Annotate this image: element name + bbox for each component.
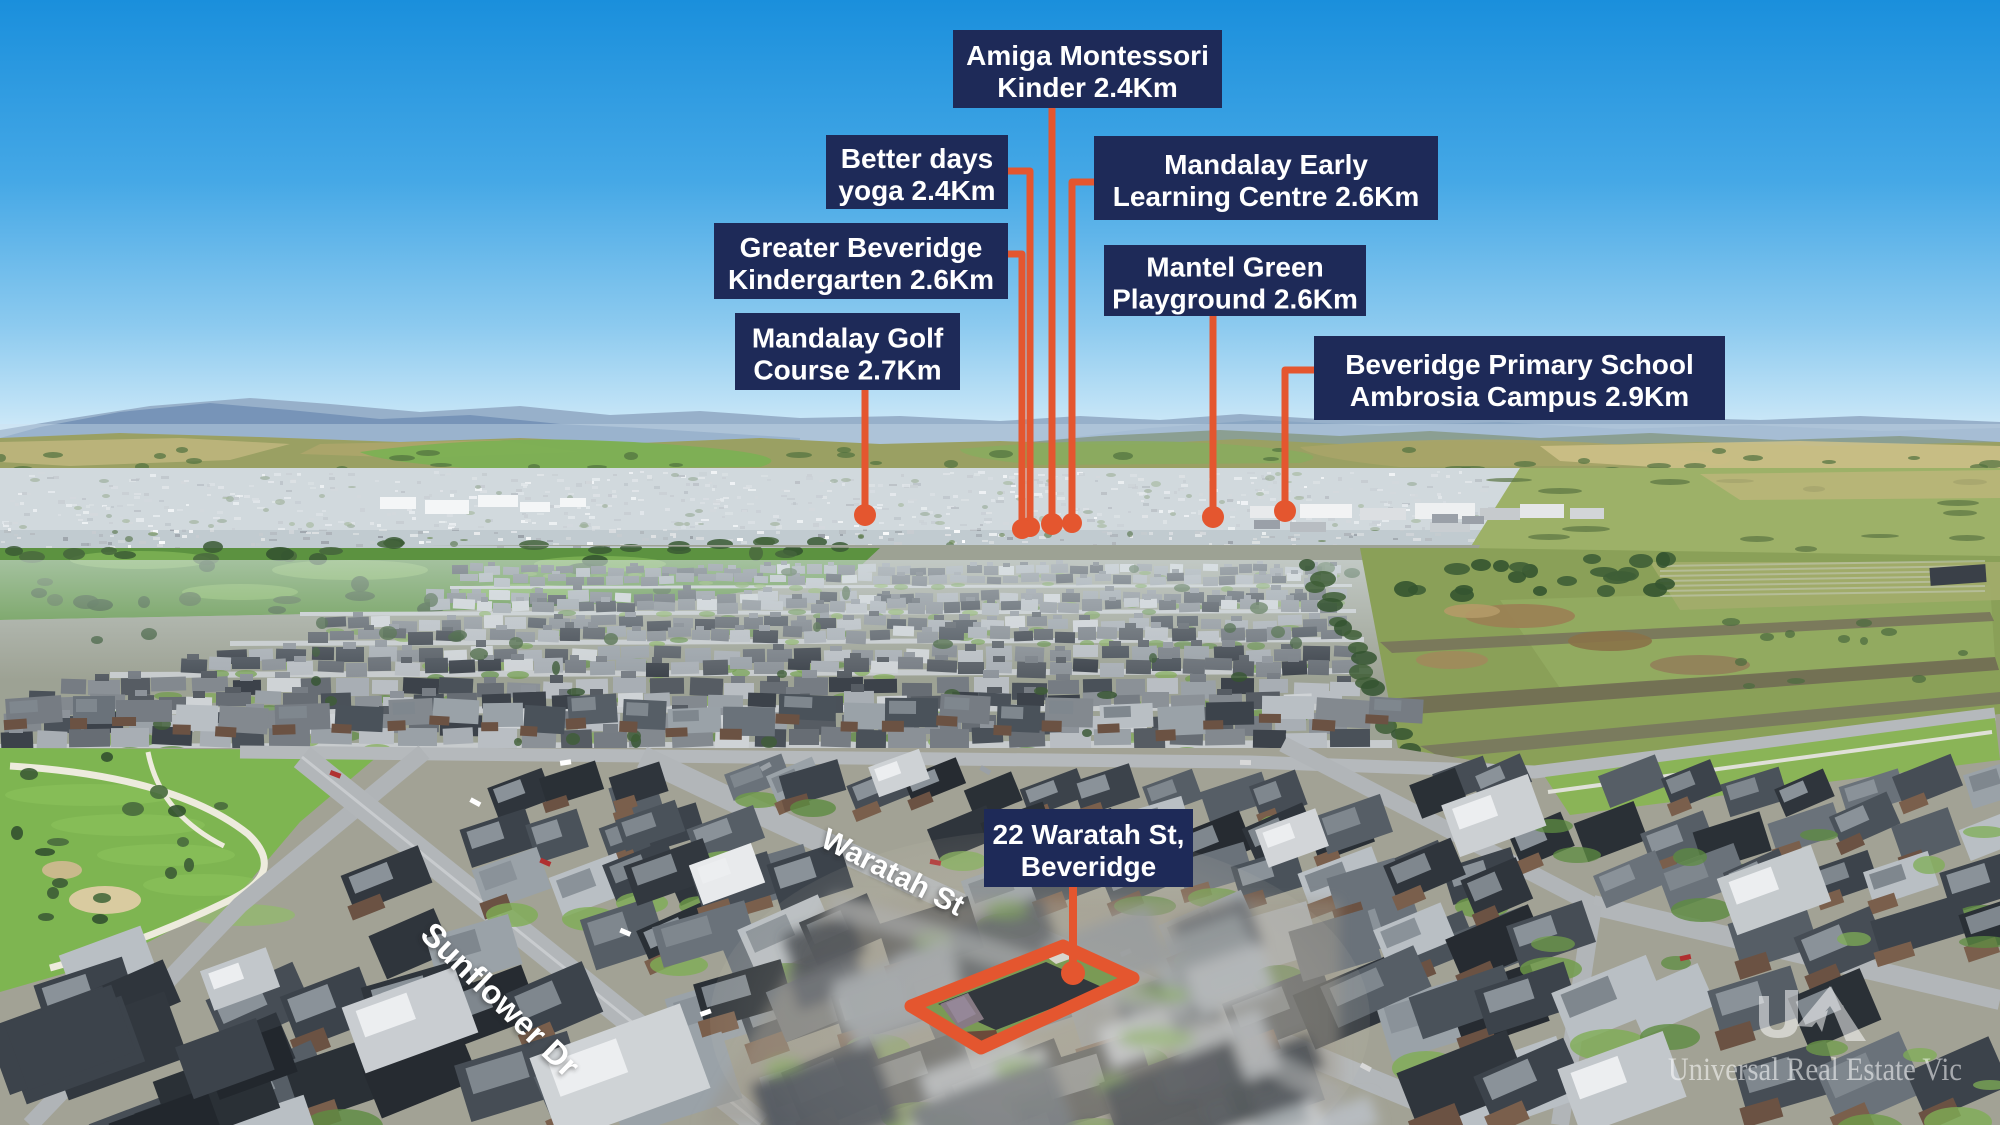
svg-text:Mantel Green: Mantel Green (1146, 252, 1323, 283)
svg-text:Course 2.7Km: Course 2.7Km (753, 355, 941, 386)
svg-text:Beveridge: Beveridge (1021, 851, 1156, 882)
svg-text:Mandalay Early: Mandalay Early (1164, 149, 1368, 180)
svg-text:Learning Centre 2.6Km: Learning Centre 2.6Km (1113, 181, 1420, 212)
svg-text:Playground 2.6Km: Playground 2.6Km (1112, 284, 1358, 315)
svg-text:Mandalay Golf: Mandalay Golf (752, 323, 944, 354)
svg-text:Amiga Montessori: Amiga Montessori (966, 40, 1209, 71)
svg-text:Universal Real Estate Vic: Universal Real Estate Vic (1668, 1052, 1962, 1088)
svg-text:Ambrosia Campus 2.9Km: Ambrosia Campus 2.9Km (1350, 381, 1689, 412)
svg-text:yoga 2.4Km: yoga 2.4Km (838, 175, 995, 206)
svg-text:22 Waratah St,: 22 Waratah St, (993, 819, 1185, 850)
svg-text:Kinder 2.4Km: Kinder 2.4Km (997, 72, 1178, 103)
svg-text:Greater Beveridge: Greater Beveridge (740, 232, 983, 263)
svg-text:Better days: Better days (841, 143, 994, 174)
svg-text:Beveridge Primary School: Beveridge Primary School (1345, 349, 1694, 380)
svg-text:Kindergarten 2.6Km: Kindergarten 2.6Km (728, 264, 994, 295)
